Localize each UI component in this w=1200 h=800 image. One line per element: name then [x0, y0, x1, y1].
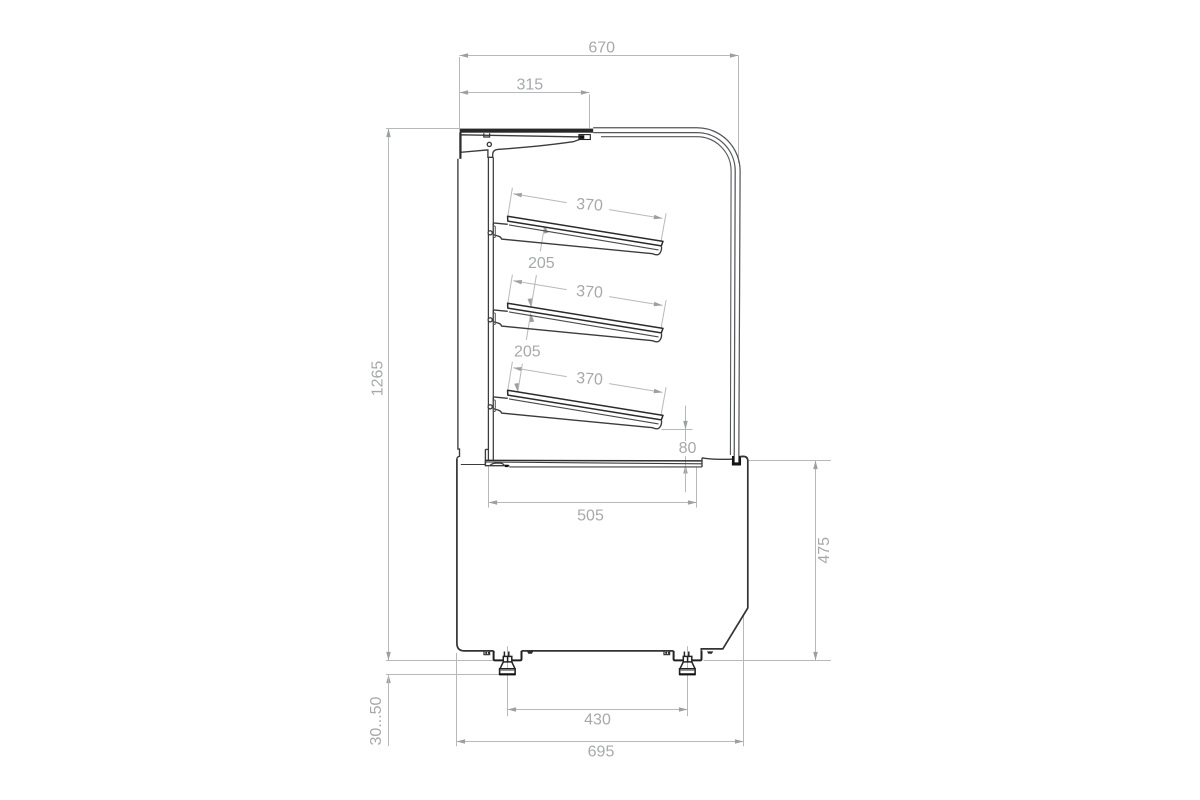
svg-text:505: 505 — [577, 508, 604, 525]
svg-text:370: 370 — [576, 283, 604, 302]
svg-text:370: 370 — [576, 196, 604, 215]
svg-text:205: 205 — [528, 255, 555, 272]
svg-text:205: 205 — [514, 344, 541, 361]
svg-text:30...50: 30...50 — [368, 696, 385, 745]
svg-text:475: 475 — [816, 537, 833, 564]
svg-text:370: 370 — [576, 370, 604, 389]
svg-text:430: 430 — [584, 711, 611, 728]
svg-text:695: 695 — [588, 744, 615, 761]
svg-text:80: 80 — [679, 440, 697, 457]
svg-text:1265: 1265 — [369, 361, 386, 397]
svg-text:670: 670 — [588, 40, 615, 57]
svg-text:315: 315 — [516, 76, 543, 93]
